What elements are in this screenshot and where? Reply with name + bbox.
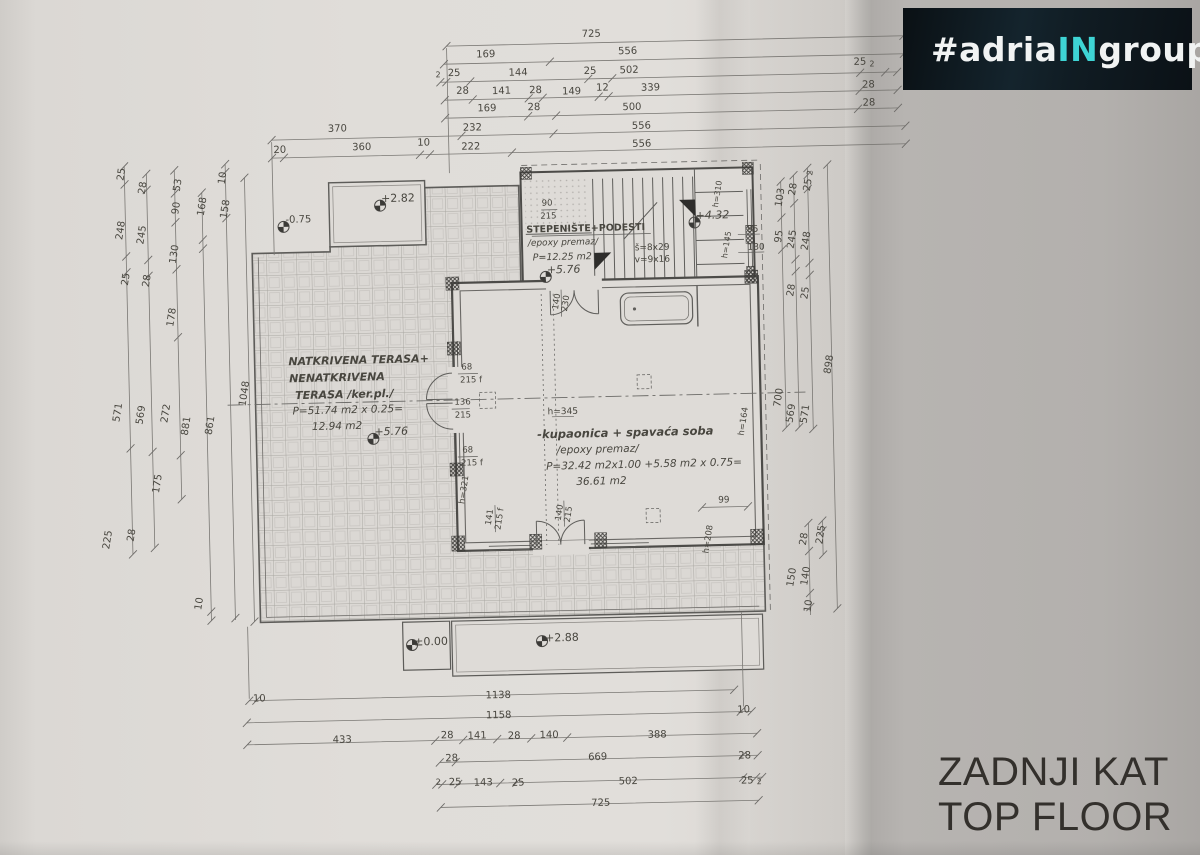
dim-label-top: 232 bbox=[463, 123, 482, 133]
dim-label-right: 700 bbox=[773, 387, 786, 407]
dim-label-right: 130 bbox=[747, 243, 764, 252]
dim-label-bottom: 2 bbox=[436, 778, 441, 786]
dim-label-left: 130 bbox=[169, 244, 182, 264]
dim-label-left: 10 bbox=[218, 171, 230, 185]
dim-label-bottom: 10 bbox=[737, 705, 750, 715]
dim-label-top: 2 bbox=[436, 71, 441, 79]
room-label: 12.94 m2 bbox=[312, 421, 363, 433]
dim-label-left: 10 bbox=[194, 597, 206, 611]
dim-label-right: 140 bbox=[800, 566, 813, 586]
elevation-label: -0.75 bbox=[285, 215, 311, 226]
plan-annotations: 7251695562251442550225228141281491233928… bbox=[0, 0, 1200, 855]
dim-label-top: 144 bbox=[508, 68, 527, 78]
dim-label-bottom: 388 bbox=[648, 730, 667, 740]
dim-label-left: 245 bbox=[136, 225, 149, 245]
dim-label-left: 1048 bbox=[238, 380, 252, 407]
floor-title: ZADNJI KAT TOP FLOOR bbox=[938, 750, 1172, 840]
logo-accent: IN bbox=[1057, 30, 1098, 69]
opening-label: 215 bbox=[564, 506, 575, 523]
logo-banner: #adriaINgroup bbox=[903, 8, 1192, 90]
dim-label-left: 25 bbox=[121, 272, 133, 286]
dim-label-bottom: 2 bbox=[757, 778, 762, 786]
dim-label-bottom: 140 bbox=[540, 731, 559, 741]
dim-label-left: 158 bbox=[220, 199, 233, 219]
dim-label-top: 141 bbox=[492, 87, 511, 97]
opening-label: h=208 bbox=[702, 524, 715, 554]
elevation-label: +2.88 bbox=[545, 632, 579, 644]
dim-label-bottom: 25 bbox=[741, 776, 754, 786]
dim-label-left: 225 bbox=[102, 530, 115, 550]
dim-label-right: 28 bbox=[788, 182, 800, 196]
opening-label: 215 bbox=[455, 411, 471, 420]
opening-label: 99 bbox=[718, 496, 730, 505]
dim-label-left: 248 bbox=[115, 220, 128, 240]
dim-label-bottom: 25 bbox=[449, 778, 462, 788]
dim-label-top: 556 bbox=[618, 47, 637, 57]
logo-suffix: group bbox=[1098, 30, 1200, 69]
dim-label-top: 28 bbox=[862, 80, 875, 90]
floor-title-en: TOP FLOOR bbox=[938, 795, 1172, 840]
room-label: 36.61 m2 bbox=[576, 476, 627, 488]
photo-of-floor-plan: 7251695562251442550225228141281491233928… bbox=[0, 0, 1200, 855]
dim-label-bottom: 28 bbox=[508, 732, 521, 742]
opening-label: h=345 bbox=[548, 408, 579, 418]
dim-label-top: 25 bbox=[584, 67, 597, 77]
dim-label-left: 861 bbox=[205, 415, 218, 435]
dim-label-right: 28 bbox=[799, 532, 811, 546]
dim-label-bottom: 502 bbox=[619, 777, 638, 787]
dim-label-top: 25 bbox=[448, 69, 461, 79]
elevation-label: +5.76 bbox=[374, 426, 408, 438]
room-label: TERASA /ker.pl./ bbox=[295, 388, 394, 401]
dim-label-right: 571 bbox=[800, 404, 813, 424]
logo-text: #adriaINgroup bbox=[931, 30, 1200, 69]
dim-label-left: 175 bbox=[152, 474, 165, 494]
dim-label-left: 28 bbox=[138, 181, 150, 195]
opening-label: 215 f bbox=[460, 376, 482, 385]
dim-label-bottom: 28 bbox=[441, 731, 454, 741]
dim-label-top: 28 bbox=[527, 103, 540, 113]
dim-label-right: 103 bbox=[775, 187, 788, 207]
dim-label-right: 25 bbox=[800, 286, 812, 300]
dim-label-bottom: 1158 bbox=[486, 711, 512, 722]
dim-label-bottom: 28 bbox=[445, 754, 458, 764]
dim-label-bottom: 10 bbox=[253, 694, 266, 704]
dim-label-top: 725 bbox=[582, 30, 601, 40]
opening-label: 215 bbox=[540, 212, 556, 221]
dim-label-right: 28 bbox=[786, 283, 798, 297]
dim-label-right: 898 bbox=[823, 354, 836, 374]
dim-label-left: 178 bbox=[166, 307, 179, 327]
dim-label-left: 90 bbox=[171, 201, 183, 215]
dim-label-left: 571 bbox=[112, 402, 125, 422]
elevation-label: +2.82 bbox=[381, 192, 415, 204]
floor-title-hr: ZADNJI KAT bbox=[938, 750, 1172, 795]
opening-label: 215 f bbox=[494, 508, 506, 531]
logo-prefix: #adria bbox=[931, 30, 1057, 69]
dim-label-left: 28 bbox=[142, 274, 154, 288]
dim-label-top: 12 bbox=[596, 83, 609, 93]
dim-label-left: 569 bbox=[135, 405, 148, 425]
dim-label-bottom: 25 bbox=[512, 779, 525, 789]
dim-label-left: 28 bbox=[127, 528, 139, 542]
dim-label-top: 149 bbox=[562, 87, 581, 97]
room-label: P=32.42 m2x1.00 +5.58 m2 x 0.75= bbox=[546, 457, 742, 472]
elevation-label: ±0.00 bbox=[414, 636, 448, 648]
dim-label-left: 881 bbox=[181, 416, 194, 436]
elevation-label: +5.76 bbox=[547, 264, 581, 276]
room-label: /epoxy premaz/ bbox=[557, 444, 639, 456]
dim-label-top: 556 bbox=[632, 139, 651, 149]
opening-label: h=321 bbox=[458, 475, 471, 505]
elevation-label: +4.32 bbox=[695, 209, 729, 221]
dim-label-left: 25 bbox=[116, 167, 128, 181]
dim-label-top: 500 bbox=[622, 103, 641, 113]
dim-label-bottom: 141 bbox=[468, 731, 487, 741]
room-label: /epoxy premaz/ bbox=[528, 238, 598, 249]
dim-label-top: 28 bbox=[862, 98, 875, 108]
dim-label-top: 370 bbox=[328, 124, 347, 134]
dim-label-right: 10 bbox=[803, 599, 815, 613]
opening-label: 136 bbox=[454, 398, 470, 407]
dim-label-top: 28 bbox=[456, 87, 469, 97]
opening-label: h=145 bbox=[721, 231, 733, 259]
opening-label: h=310 bbox=[712, 180, 724, 208]
dim-label-right: 225 bbox=[815, 525, 828, 545]
dim-label-right: 150 bbox=[786, 567, 799, 587]
dim-label-top: 502 bbox=[619, 66, 638, 76]
floor-plan-drawing: 7251695562251442550225228141281491233928… bbox=[0, 0, 1200, 855]
dim-label-top: 25 bbox=[854, 58, 867, 68]
dim-label-bottom: 433 bbox=[333, 735, 352, 745]
dim-label-right: 245 bbox=[787, 229, 800, 249]
dim-label-top: 20 bbox=[273, 146, 286, 156]
room-label: P=12.25 m2 bbox=[533, 252, 592, 263]
dim-label-top: 222 bbox=[461, 142, 480, 152]
dim-label-left: 53 bbox=[173, 178, 185, 192]
room-label: š=8x29 bbox=[635, 244, 670, 254]
dim-label-bottom: 28 bbox=[738, 751, 751, 761]
room-label: -kupaonica + spavaća soba bbox=[537, 425, 713, 440]
dim-label-right: 25 bbox=[803, 178, 815, 192]
dim-label-top: 2 bbox=[869, 60, 874, 68]
opening-label: h=164 bbox=[738, 407, 751, 437]
dim-label-right: 2 bbox=[806, 170, 815, 176]
dim-label-bottom: 1138 bbox=[485, 691, 511, 702]
opening-label: 230 bbox=[561, 295, 572, 312]
dim-label-bottom: 669 bbox=[588, 753, 607, 763]
room-label: STEPENIŠTE+PODESTI bbox=[526, 223, 645, 235]
room-label: P=51.74 m2 x 0.25= bbox=[292, 404, 403, 417]
opening-label: 215 f bbox=[461, 459, 483, 468]
dim-label-bottom: 143 bbox=[474, 778, 493, 788]
dim-label-right: 95 bbox=[774, 230, 786, 244]
dim-label-top: 339 bbox=[641, 83, 660, 93]
dim-label-right: 95 bbox=[747, 226, 759, 235]
dim-label-bottom: 725 bbox=[591, 799, 610, 809]
dim-label-top: 169 bbox=[477, 104, 496, 114]
dim-label-right: 569 bbox=[786, 403, 799, 423]
dim-label-top: 28 bbox=[529, 86, 542, 96]
opening-label: 68 bbox=[461, 363, 472, 372]
dim-label-top: 169 bbox=[476, 50, 495, 60]
dim-label-top: 10 bbox=[417, 139, 430, 149]
dim-label-right: 248 bbox=[801, 231, 814, 251]
dim-label-left: 168 bbox=[197, 196, 210, 216]
opening-label: 90 bbox=[542, 200, 553, 209]
opening-label: 68 bbox=[462, 446, 473, 455]
room-label: NENATKRIVENA bbox=[289, 371, 385, 384]
dim-label-top: 556 bbox=[632, 122, 651, 132]
room-label: NATKRIVENA TERASA+ bbox=[288, 353, 429, 367]
dim-label-left: 272 bbox=[160, 403, 173, 423]
room-label: v=9x16 bbox=[635, 256, 671, 266]
dim-label-top: 360 bbox=[352, 143, 371, 153]
